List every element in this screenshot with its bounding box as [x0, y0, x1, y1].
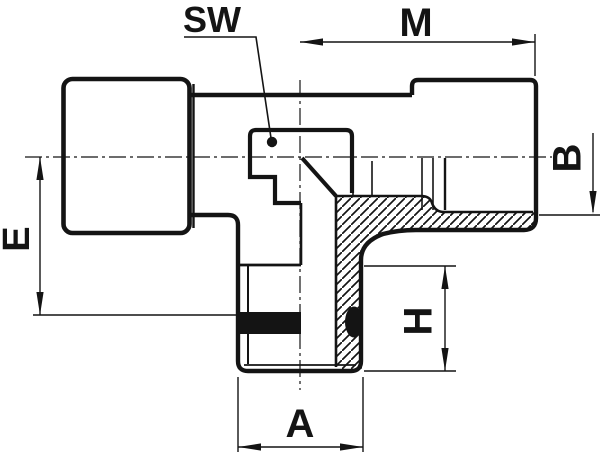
oring-section	[345, 307, 363, 338]
label-b: B	[546, 144, 590, 173]
label-h: H	[397, 307, 441, 336]
label-sw: SW	[183, 0, 241, 40]
label-e: E	[0, 226, 38, 251]
drawing-canvas: SW M B E H A	[0, 0, 600, 452]
oring-band	[239, 312, 301, 334]
label-a: A	[286, 402, 315, 446]
sw-leader-dot	[267, 137, 277, 147]
label-m: M	[399, 1, 432, 45]
technical-drawing: SW M B E H A	[0, 0, 600, 452]
